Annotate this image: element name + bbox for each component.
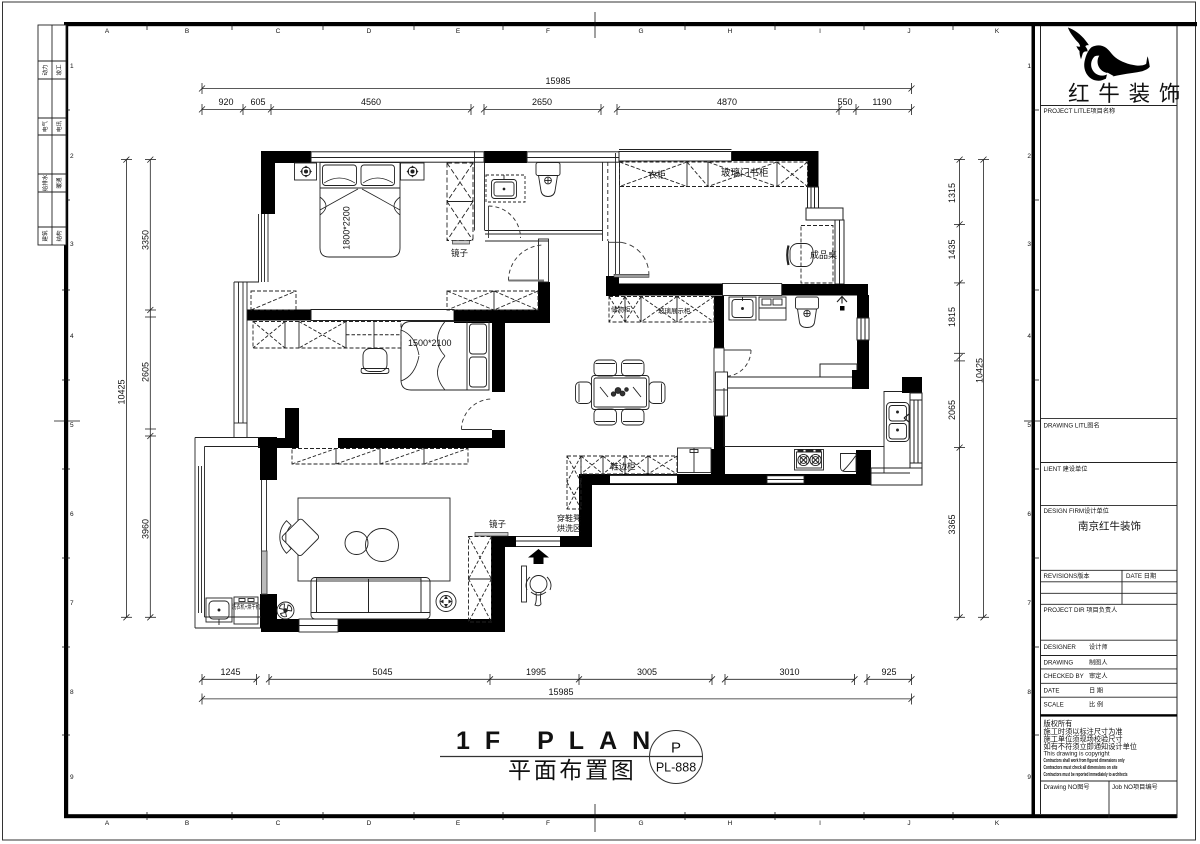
svg-text:B: B: [185, 820, 189, 827]
svg-text:2: 2: [1027, 153, 1031, 160]
svg-text:SCALE: SCALE: [1044, 702, 1064, 709]
svg-text:Contractors must be reported i: Contractors must be reported immediately…: [1044, 772, 1128, 778]
svg-text:DESIGN FIRM设计单位: DESIGN FIRM设计单位: [1044, 507, 1109, 515]
svg-text:A: A: [105, 28, 110, 35]
svg-text:3: 3: [70, 241, 74, 248]
svg-text:550: 550: [837, 97, 852, 107]
svg-text:5: 5: [70, 422, 74, 429]
svg-text:1800*2200: 1800*2200: [342, 206, 352, 250]
svg-text:1F PLAN: 1F PLAN: [456, 727, 665, 755]
svg-text:9: 9: [1027, 774, 1031, 781]
svg-text:Job NO项目编号: Job NO项目编号: [1112, 783, 1158, 791]
svg-text:镜子: 镜子: [489, 519, 507, 529]
svg-text:G: G: [638, 28, 643, 35]
svg-text:DATE: DATE: [1044, 688, 1060, 695]
svg-text:15985: 15985: [545, 76, 570, 86]
svg-text:PROJECT DIR 项目负责人: PROJECT DIR 项目负责人: [1044, 606, 1118, 614]
svg-text:1: 1: [70, 63, 74, 70]
svg-text:储物柜: 储物柜: [611, 305, 631, 314]
svg-text:2: 2: [70, 153, 74, 160]
svg-text:K: K: [995, 820, 1000, 827]
svg-text:1245: 1245: [220, 667, 240, 677]
svg-text:设计师: 设计师: [1089, 643, 1108, 651]
svg-text:6: 6: [1027, 511, 1031, 518]
svg-text:4870: 4870: [717, 97, 737, 107]
svg-text:10425: 10425: [975, 358, 985, 383]
svg-text:Contractors must check all dim: Contractors must check all dimensions on…: [1044, 765, 1118, 771]
svg-text:7: 7: [1027, 600, 1031, 607]
svg-text:4: 4: [1027, 333, 1031, 340]
svg-text:DATE 日期: DATE 日期: [1126, 572, 1156, 580]
svg-text:C: C: [276, 28, 281, 35]
svg-text:玻璃门书柜: 玻璃门书柜: [721, 167, 769, 179]
svg-text:920: 920: [218, 97, 233, 107]
svg-text:成品桌: 成品桌: [810, 249, 837, 260]
svg-text:LIENT 建设单位: LIENT 建设单位: [1044, 465, 1088, 473]
svg-text:DRAWING LITL图名: DRAWING LITL图名: [1044, 422, 1100, 430]
svg-text:鞋边柜: 鞋边柜: [610, 462, 636, 472]
svg-text:电气: 电气: [41, 121, 49, 133]
svg-text:P: P: [671, 740, 681, 757]
svg-text:F: F: [546, 28, 550, 35]
svg-text:2650: 2650: [532, 97, 552, 107]
svg-text:5045: 5045: [372, 667, 392, 677]
svg-text:Drawing NO图号: Drawing NO图号: [1044, 784, 1090, 791]
svg-text:605: 605: [250, 97, 265, 107]
svg-text:衣柜: 衣柜: [648, 169, 666, 180]
svg-text:DRAWING: DRAWING: [1044, 660, 1074, 667]
svg-text:8: 8: [1027, 689, 1031, 696]
svg-text:J: J: [907, 820, 910, 827]
svg-text:3: 3: [1027, 241, 1031, 248]
svg-text:Contractors shall work from fi: Contractors shall work from figured dime…: [1044, 758, 1125, 764]
svg-text:DESIGNER: DESIGNER: [1044, 644, 1077, 651]
svg-text:This drawing is copyright: This drawing is copyright: [1044, 752, 1110, 758]
svg-text:15985: 15985: [548, 687, 573, 697]
svg-text:审定人: 审定人: [1089, 672, 1108, 680]
svg-text:F: F: [546, 820, 550, 827]
svg-text:I: I: [819, 820, 821, 827]
svg-text:镜子: 镜子: [451, 248, 469, 258]
svg-text:9: 9: [70, 774, 74, 781]
svg-text:8: 8: [70, 689, 74, 696]
svg-text:10425: 10425: [117, 379, 127, 404]
svg-text:2065: 2065: [947, 400, 957, 420]
svg-text:1: 1: [1027, 63, 1031, 70]
svg-text:建筑: 建筑: [41, 230, 49, 242]
svg-text:1315: 1315: [947, 183, 957, 203]
svg-text:日 期: 日 期: [1089, 687, 1103, 695]
svg-text:5: 5: [1027, 422, 1031, 429]
svg-text:1435: 1435: [947, 239, 957, 259]
svg-text:穿鞋凳: 穿鞋凳: [557, 513, 581, 523]
svg-text:南京红牛装饰: 南京红牛装饰: [1078, 520, 1141, 533]
svg-text:G: G: [638, 820, 643, 827]
svg-text:3350: 3350: [141, 230, 151, 250]
svg-text:D: D: [367, 820, 372, 827]
svg-text:平面布置图: 平面布置图: [508, 757, 637, 783]
svg-text:比 例: 比 例: [1089, 701, 1103, 709]
svg-text:玻璃展示柜: 玻璃展示柜: [658, 306, 691, 315]
svg-text:3010: 3010: [779, 667, 799, 677]
svg-text:暖通: 暖通: [55, 177, 63, 189]
svg-text:C: C: [276, 820, 281, 827]
svg-text:动力: 动力: [41, 64, 49, 75]
svg-text:PL-888: PL-888: [656, 761, 696, 775]
svg-text:2605: 2605: [141, 362, 151, 382]
svg-text:E: E: [456, 820, 461, 827]
svg-text:3960: 3960: [141, 519, 151, 539]
svg-text:A: A: [105, 820, 110, 827]
svg-text:B: B: [185, 28, 189, 35]
svg-text:3365: 3365: [947, 514, 957, 534]
svg-text:电讯: 电讯: [55, 121, 63, 133]
svg-text:4: 4: [70, 333, 74, 340]
svg-text:E: E: [456, 28, 461, 35]
svg-text:烘洗区: 烘洗区: [557, 523, 581, 533]
svg-text:K: K: [995, 28, 1000, 35]
svg-text:1815: 1815: [947, 307, 957, 327]
svg-text:竣工: 竣工: [55, 64, 63, 76]
svg-text:4560: 4560: [361, 97, 381, 107]
svg-text:H: H: [728, 820, 733, 827]
svg-text:CHECKED BY: CHECKED BY: [1044, 673, 1084, 680]
svg-text:结构: 结构: [55, 230, 63, 242]
svg-text:1995: 1995: [526, 667, 546, 677]
svg-text:1190: 1190: [872, 97, 891, 107]
svg-text:J: J: [907, 28, 910, 35]
svg-text:H: H: [728, 28, 733, 35]
svg-text:PROJECT LITLE项目名称: PROJECT LITLE项目名称: [1044, 107, 1116, 115]
svg-text:6: 6: [70, 511, 74, 518]
svg-text:如有不符须立即通知设计单位: 如有不符须立即通知设计单位: [1044, 742, 1137, 751]
svg-text:3005: 3005: [637, 667, 657, 677]
svg-text:给排水: 给排水: [41, 174, 49, 191]
svg-text:D: D: [367, 28, 372, 35]
svg-text:洗衣机+烘干机: 洗衣机+烘干机: [232, 603, 260, 611]
svg-text:1500*2100: 1500*2100: [408, 338, 452, 348]
svg-text:制图人: 制图人: [1089, 659, 1108, 667]
svg-text:红牛装饰: 红牛装饰: [1068, 82, 1189, 106]
svg-text:REVISIONS版本: REVISIONS版本: [1044, 572, 1090, 580]
svg-text:I: I: [819, 28, 821, 35]
svg-text:925: 925: [881, 667, 896, 677]
svg-text:7: 7: [70, 600, 74, 607]
